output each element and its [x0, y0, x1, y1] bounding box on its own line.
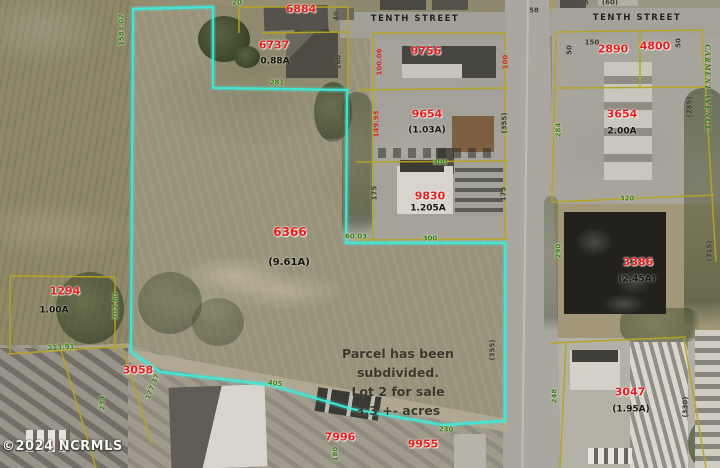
- trailer-column-east: [695, 330, 720, 468]
- building-9830-roof: [400, 160, 444, 172]
- aerial-parcel-map: TENTH STREETTENTH STREETCARMENT AVENUE68…: [0, 0, 720, 468]
- building-3654: [604, 62, 652, 180]
- building-shed-north: [336, 8, 354, 20]
- subdivision-note: Parcel has been subdivided. Lot 2 for sa…: [322, 344, 474, 420]
- building-northeast-edge: [560, 0, 586, 8]
- tree-strip-carment: [684, 88, 720, 338]
- road-tenth-west: [340, 12, 506, 38]
- building-6737: [286, 32, 338, 78]
- tree-cluster: [56, 272, 124, 344]
- trucks-3047-south: [588, 448, 632, 464]
- building-3047-roof: [572, 350, 618, 362]
- building-9756-front: [402, 64, 462, 78]
- building-9955: [454, 434, 486, 468]
- note-line-3: 3.3 +- acres: [322, 401, 474, 420]
- building-3386: [564, 212, 666, 314]
- building-north-edge-a: [380, 0, 426, 10]
- building-northeast-edge-b: [598, 0, 638, 6]
- mls-watermark: ©2024 NCRMLS: [2, 439, 123, 454]
- parked-cars-9830: [455, 168, 503, 218]
- note-line-2: Lot 2 for sale: [322, 382, 474, 401]
- building-warehouse: [169, 384, 268, 468]
- note-line-1: Parcel has been subdivided.: [322, 344, 474, 382]
- building-6884: [264, 5, 329, 31]
- trailer-rows-3047: [630, 342, 688, 468]
- tree-scrub-strip: [342, 92, 372, 242]
- parked-cars-9654: [378, 148, 496, 158]
- building-9830: [397, 166, 453, 214]
- building-north-edge-b: [432, 0, 468, 10]
- building-9654: [452, 116, 494, 152]
- tree-cluster: [234, 46, 260, 68]
- grass-strip-road: [544, 196, 558, 338]
- tree-cluster: [192, 298, 244, 346]
- road-tenth-east: [549, 8, 720, 36]
